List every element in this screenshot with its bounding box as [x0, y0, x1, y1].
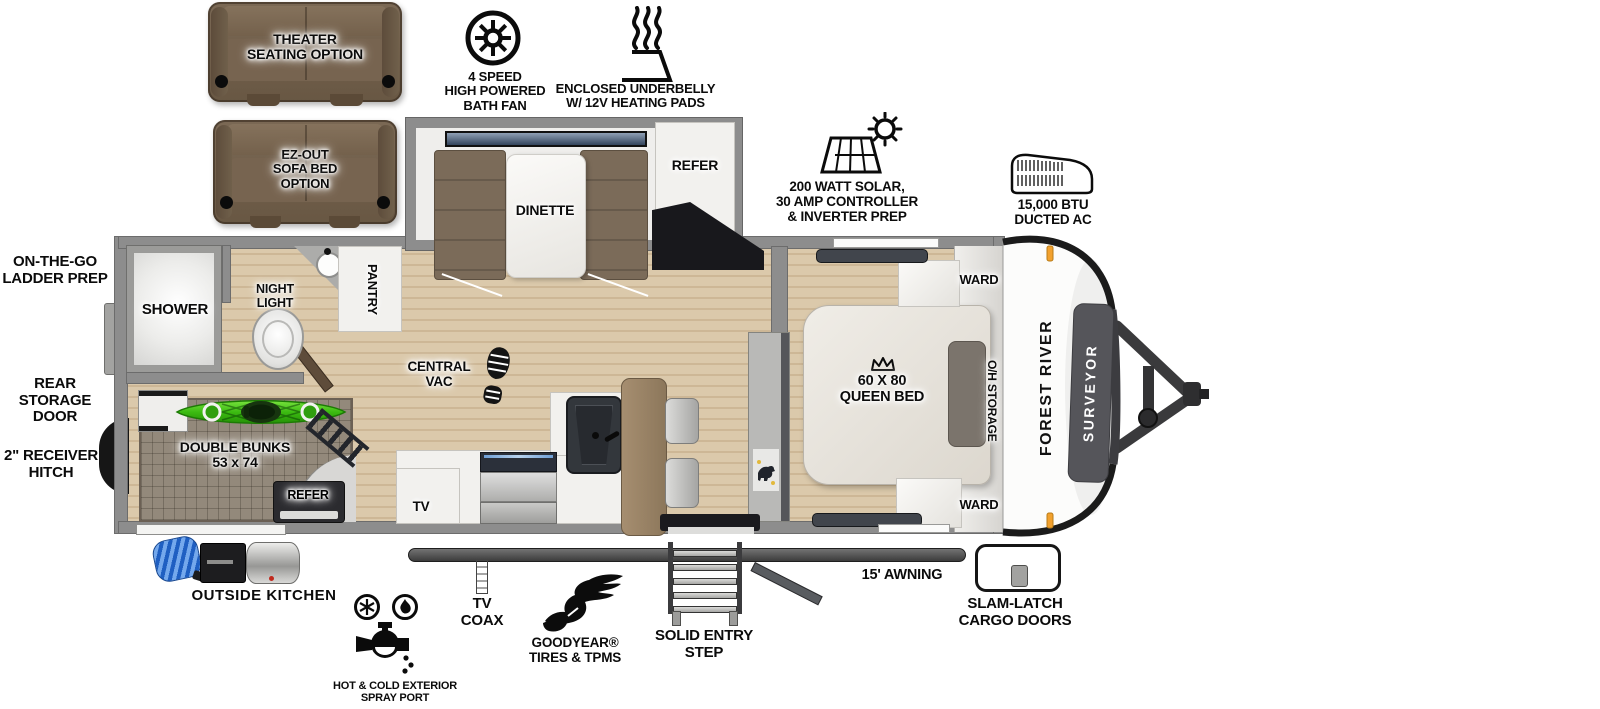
dinette-window — [445, 131, 647, 147]
kitchen-sink — [566, 396, 622, 474]
bath-fan-label: 4 SPEED HIGH POWERED BATH FAN — [432, 70, 558, 113]
tv-coax-connector — [476, 560, 488, 594]
trim — [139, 426, 168, 431]
floorplan-canvas: THEATER SEATING OPTION EZ-OUT SOFA BED O… — [0, 0, 1600, 709]
crown-icon — [868, 356, 898, 374]
sink-drain — [592, 432, 599, 439]
dinette-bench-left — [434, 150, 506, 280]
sofa-leg — [329, 216, 360, 228]
ladder-prep-label: ON-THE-GO LADDER PREP — [0, 254, 110, 287]
night-light-label: NIGHT LIGHT — [240, 283, 310, 311]
double-bunks-label: DOUBLE BUNKS 53 x 74 — [168, 440, 302, 471]
cargo-latch — [1011, 565, 1028, 587]
entry-step-label: SOLID ENTRY STEP — [638, 628, 770, 661]
step-rung — [673, 578, 737, 585]
outside-kitchen-label: OUTSIDE KITCHEN — [182, 588, 346, 605]
refer-vent — [280, 511, 338, 519]
central-vac-label: CENTRAL VAC — [400, 360, 478, 390]
ducted-ac-icon — [1008, 148, 1096, 196]
model-decal-panel: SURVEYOR — [1068, 303, 1114, 482]
solid-entry-step — [664, 542, 746, 628]
tv-cabinet — [396, 468, 460, 524]
bedroom-bottom-window — [878, 524, 950, 533]
hitch-coupler — [1183, 382, 1201, 406]
door-edge — [781, 333, 789, 521]
sofa-bed-label: EZ-OUT SOFA BED OPTION — [213, 148, 397, 191]
slam-latch-cargo-door — [975, 544, 1061, 592]
nightstand-top — [898, 260, 960, 307]
step-rung — [673, 606, 737, 613]
queen-bed-label: 60 X 80 QUEEN BED — [828, 374, 936, 406]
burner-glow — [484, 455, 553, 458]
tires-label: GOODYEAR® TIRES & TPMS — [516, 636, 634, 666]
outside-kitchen-box — [200, 543, 246, 583]
bedroom-wall-upper — [771, 246, 788, 334]
manufacturer-name: FOREST RIVER — [1038, 320, 1055, 456]
bar-counter — [621, 378, 667, 536]
goodyear-wingfoot-icon — [538, 572, 626, 636]
rear-storage-label: REAR STORAGE DOOR — [0, 376, 110, 426]
ez-out-sofa-bed-option: EZ-OUT SOFA BED OPTION — [213, 120, 397, 224]
tv-label: TV — [398, 500, 444, 515]
bedroom-top-vent — [816, 249, 928, 263]
entry-door-open — [748, 332, 790, 522]
sofa-leg — [330, 94, 363, 106]
pantry-label: PANTRY — [355, 250, 379, 328]
trailer-nose: SURVEYOR FOREST RIVER — [995, 226, 1210, 548]
handle — [207, 560, 233, 564]
tongue-jack — [1143, 366, 1154, 410]
spray-port-icon — [348, 592, 434, 678]
step-rung — [673, 550, 737, 557]
outside-griddle — [246, 542, 300, 584]
solar-prep-label: 200 WATT SOLAR, 30 AMP CONTROLLER & INVE… — [772, 180, 922, 225]
receiver-hitch-label: 2" RECEIVER HITCH — [0, 448, 102, 481]
bath-faucet — [324, 248, 331, 255]
solar-prep-icon — [818, 112, 906, 178]
step-rung — [673, 564, 737, 571]
oven-drawer — [480, 502, 557, 524]
bear-decal — [753, 449, 779, 491]
step-foot — [672, 611, 681, 626]
marker-light-top — [1047, 246, 1053, 261]
tv-coax-label: TV COAX — [442, 596, 522, 629]
sofa-leg — [250, 216, 281, 228]
jack-wheel — [1139, 409, 1157, 427]
entry-landing — [668, 527, 754, 534]
hitch-tip — [1199, 389, 1209, 399]
bunk-refer-label: REFER — [276, 489, 340, 503]
bathroom-bottom-wall — [126, 372, 304, 384]
bath-fan-icon — [463, 8, 523, 68]
step-rung — [673, 592, 737, 599]
sofa-leg — [247, 94, 280, 106]
awning-arm — [750, 562, 822, 605]
step-rail — [737, 542, 742, 614]
cargo-doors-label: SLAM-LATCH CARGO DOORS — [930, 596, 1100, 629]
cooktop — [480, 452, 557, 472]
awning-label: 15' AWNING — [842, 568, 962, 584]
bar-stool — [665, 398, 699, 444]
step-foot — [729, 611, 738, 626]
marker-light-bottom — [1047, 513, 1053, 528]
heated-underbelly-icon — [606, 6, 686, 84]
ducted-ac-label: 15,000 BTU DUCTED AC — [998, 198, 1108, 228]
theater-seating-option: THEATER SEATING OPTION — [208, 2, 402, 102]
shower-label: SHOWER — [132, 302, 218, 319]
bathroom-wall-stub — [222, 245, 231, 303]
sofa-foot — [215, 75, 228, 88]
spray-port-label: HOT & COLD EXTERIOR SPRAY PORT — [328, 680, 462, 704]
oven-body — [480, 472, 557, 502]
underbelly-label: ENCLOSED UNDERBELLY W/ 12V HEATING PADS — [548, 82, 723, 111]
theater-seating-label: THEATER SEATING OPTION — [208, 32, 402, 63]
outside-kitchen-door — [136, 524, 286, 535]
stove — [480, 452, 557, 524]
bedroom-top-window — [833, 238, 939, 248]
indicator — [269, 576, 274, 581]
dinette-bench-right — [580, 150, 648, 280]
toilet-seat — [262, 320, 294, 358]
sofa-foot — [382, 75, 395, 88]
bar-stool — [665, 458, 699, 508]
dinette-label: DINETTE — [503, 203, 587, 218]
refer-label: REFER — [660, 158, 730, 173]
